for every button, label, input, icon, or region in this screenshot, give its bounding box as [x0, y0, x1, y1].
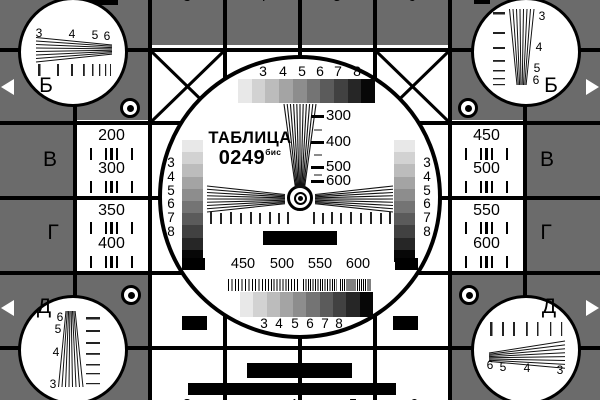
frequency-burst — [340, 279, 371, 291]
frequency-burst — [303, 279, 337, 291]
row-letter: Д — [535, 296, 563, 318]
resolution-value: 550 — [452, 203, 521, 220]
row-letter: В — [533, 149, 561, 171]
edge-digit-bottom: 4 — [286, 396, 300, 400]
edge-digit-bottom: 3 — [180, 396, 194, 400]
corner-ticks-bottom-right — [488, 322, 566, 338]
edge-digit-bottom: 6 — [407, 396, 421, 400]
card-number: 0249бис — [208, 148, 292, 169]
line-group-pattern — [452, 148, 521, 160]
wedge-number: 6 — [101, 29, 113, 43]
line-group-pattern — [452, 222, 521, 234]
grayscale-column-right — [394, 140, 415, 262]
resolution-value: 600 — [452, 236, 521, 253]
wedge-label: 300 — [326, 108, 362, 123]
row-letter: Б — [32, 75, 60, 97]
line-group-pattern — [77, 181, 146, 193]
resolution-value: 400 — [77, 236, 146, 253]
wedge-tick-minor — [314, 129, 322, 131]
center-target-icon — [287, 185, 313, 211]
wedge-number: 3 — [536, 9, 548, 23]
target-icon — [121, 285, 141, 305]
edge-digit-top: 3 — [180, 0, 194, 5]
resolution-value: 350 — [77, 203, 146, 220]
card-title: ТАБЛИЦА — [208, 130, 292, 147]
wedge-number: 4 — [66, 27, 78, 41]
row-letter: Б — [537, 75, 565, 97]
grayscale-staircase-bottom — [240, 292, 373, 317]
grayscale-staircase-top — [238, 79, 375, 103]
line-group-pattern — [77, 256, 146, 268]
grid-vline — [448, 0, 452, 400]
line-group-pattern — [452, 256, 521, 268]
gray-label: 5 — [288, 317, 302, 331]
resolution-value: 300 — [77, 161, 146, 178]
line-group-pattern — [77, 222, 146, 234]
burst-label: 600 — [340, 257, 376, 272]
line-group-pattern — [452, 181, 521, 193]
burst-label: 550 — [302, 257, 338, 272]
wedge-tick-minor — [314, 154, 322, 156]
edge-digit-top: 5 — [330, 0, 344, 5]
row-letter: В — [36, 149, 64, 171]
wedge-number: 4 — [533, 40, 545, 54]
target-icon — [120, 98, 140, 118]
card-number-suffix: бис — [265, 147, 281, 157]
card-number-digits: 0249 — [219, 147, 266, 169]
wedge-tick — [311, 166, 324, 169]
gray-label: 8 — [350, 64, 364, 79]
frequency-burst — [228, 279, 263, 291]
black-patch — [393, 316, 418, 330]
row-letter: Г — [39, 222, 67, 244]
wedge-label: 400 — [326, 134, 362, 149]
bottom-bar-short — [247, 363, 352, 378]
grayscale-column-left — [182, 140, 203, 262]
burst-label: 450 — [225, 257, 261, 272]
gray-label: 8 — [420, 225, 434, 239]
gray-label: 8 — [164, 225, 178, 239]
wedge-number: 4 — [50, 345, 62, 359]
resolution-value: 500 — [452, 161, 521, 178]
bottom-bar-long — [188, 383, 396, 395]
horizontal-wedge-right — [315, 185, 393, 213]
wedge-tick — [311, 115, 324, 118]
gray-label: 7 — [331, 64, 345, 79]
resolution-value: 200 — [77, 128, 146, 145]
edge-marker-icon — [586, 300, 599, 316]
line-group-pattern — [77, 148, 146, 160]
wedge-number: 5 — [52, 322, 64, 336]
wedge-number: 3 — [33, 26, 45, 40]
edge-digit-top: 6 — [405, 0, 419, 5]
corner-ticks-top-right — [493, 10, 507, 88]
gray-label: 7 — [318, 317, 332, 331]
gray-label: 6 — [313, 64, 327, 79]
center-tick-row — [208, 212, 392, 224]
gray-label: 4 — [272, 317, 286, 331]
gray-label: 5 — [295, 64, 309, 79]
center-black-bar — [263, 231, 337, 245]
row-letter: Г — [532, 222, 560, 244]
resolution-value: 450 — [452, 128, 521, 145]
frequency-burst — [265, 279, 299, 291]
edge-marker-icon — [1, 79, 14, 95]
black-patch — [395, 258, 418, 270]
gray-label: 4 — [276, 64, 290, 79]
wedge-number: 3 — [47, 377, 59, 391]
gray-label: 8 — [332, 317, 346, 331]
black-patch — [182, 258, 205, 270]
wedge-tick — [311, 141, 324, 144]
corner-ticks-bottom-left — [86, 312, 102, 388]
wedge-number: 4 — [521, 361, 533, 375]
horizontal-wedge-left — [207, 185, 285, 213]
edge-digit-top: 4 — [255, 0, 269, 5]
row-letter: Д — [30, 296, 58, 318]
target-icon — [459, 285, 479, 305]
wedge-number: 3 — [554, 363, 566, 377]
gray-label: 3 — [256, 64, 270, 79]
top-edge-bar — [474, 0, 490, 4]
gray-label: 3 — [257, 317, 271, 331]
black-patch — [182, 316, 207, 330]
edge-marker-icon — [586, 79, 599, 95]
edge-digit-bottom: 5 — [346, 396, 360, 400]
target-icon — [458, 98, 478, 118]
wedge-number: 5 — [89, 28, 101, 42]
gray-label: 6 — [303, 317, 317, 331]
burst-label: 500 — [264, 257, 300, 272]
wedge-number: 6 — [484, 358, 496, 372]
edge-marker-icon — [1, 300, 14, 316]
wedge-tick — [311, 180, 324, 183]
wedge-number: 5 — [497, 360, 509, 374]
wedge-tick-minor — [314, 174, 322, 176]
test-card: 3 4 5 6 7 8 300 400 500 600 ТАБЛИЦА 0249… — [0, 0, 600, 400]
